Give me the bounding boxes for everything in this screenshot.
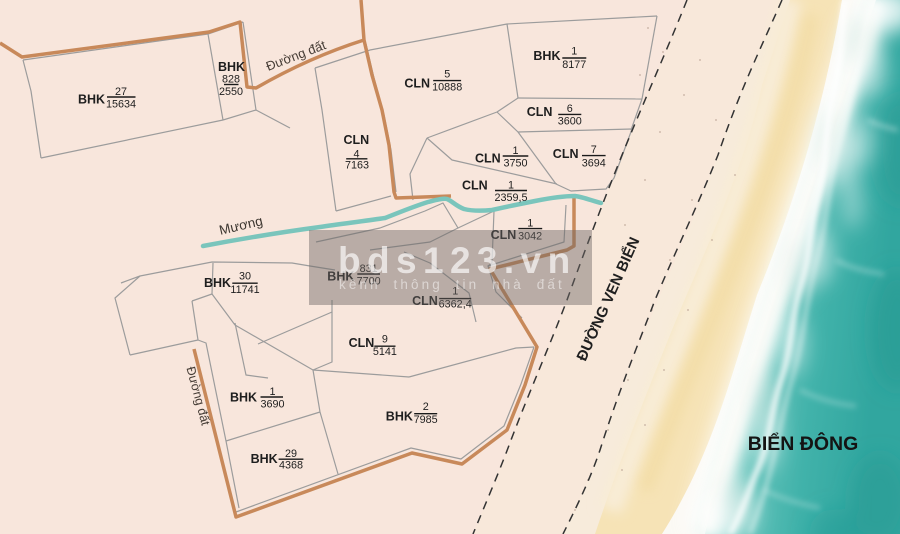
svg-text:3600: 3600 bbox=[558, 115, 582, 127]
svg-text:BHK: BHK bbox=[251, 452, 278, 466]
svg-text:CLN: CLN bbox=[527, 105, 553, 119]
svg-text:bds123.vn: bds123.vn bbox=[338, 240, 577, 281]
svg-text:BIỂN ĐÔNG: BIỂN ĐÔNG bbox=[748, 431, 859, 455]
svg-text:5141: 5141 bbox=[373, 346, 397, 358]
svg-text:2: 2 bbox=[423, 401, 429, 413]
svg-text:CLN: CLN bbox=[404, 76, 430, 90]
svg-text:4368: 4368 bbox=[279, 459, 303, 471]
svg-text:1: 1 bbox=[512, 145, 518, 157]
svg-text:10888: 10888 bbox=[432, 81, 462, 93]
svg-text:7163: 7163 bbox=[345, 160, 369, 172]
svg-text:CLN: CLN bbox=[553, 147, 579, 161]
svg-text:BHK: BHK bbox=[386, 410, 413, 424]
svg-text:BHK: BHK bbox=[230, 391, 257, 405]
svg-text:BHK: BHK bbox=[78, 93, 105, 107]
svg-text:1: 1 bbox=[269, 386, 275, 398]
svg-text:5: 5 bbox=[444, 69, 450, 81]
svg-text:BHK: BHK bbox=[218, 60, 245, 74]
svg-text:828: 828 bbox=[222, 74, 240, 86]
svg-text:BHK: BHK bbox=[533, 49, 560, 63]
svg-text:2550: 2550 bbox=[219, 86, 243, 98]
svg-text:27: 27 bbox=[115, 86, 127, 98]
svg-text:BHK: BHK bbox=[204, 276, 231, 290]
svg-text:2359,5: 2359,5 bbox=[494, 192, 527, 204]
svg-text:3694: 3694 bbox=[582, 157, 606, 169]
svg-text:15634: 15634 bbox=[106, 99, 136, 111]
svg-text:3690: 3690 bbox=[260, 399, 284, 411]
svg-text:6: 6 bbox=[567, 103, 573, 115]
svg-text:CLN: CLN bbox=[475, 152, 501, 166]
svg-text:1: 1 bbox=[571, 45, 577, 57]
svg-text:CLN: CLN bbox=[349, 336, 375, 350]
svg-text:1: 1 bbox=[527, 218, 533, 230]
svg-text:30: 30 bbox=[239, 270, 251, 282]
svg-text:CLN: CLN bbox=[343, 133, 369, 147]
svg-text:9: 9 bbox=[382, 334, 388, 346]
svg-text:8177: 8177 bbox=[562, 59, 586, 71]
svg-text:1: 1 bbox=[508, 180, 514, 192]
svg-text:CLN: CLN bbox=[462, 179, 488, 193]
svg-text:29: 29 bbox=[285, 448, 297, 460]
svg-text:7: 7 bbox=[591, 144, 597, 156]
svg-text:kênh thông tin nhà đất: kênh thông tin nhà đất bbox=[339, 277, 565, 292]
svg-text:11741: 11741 bbox=[230, 284, 259, 296]
svg-text:7985: 7985 bbox=[414, 414, 438, 426]
svg-text:3750: 3750 bbox=[503, 158, 527, 170]
